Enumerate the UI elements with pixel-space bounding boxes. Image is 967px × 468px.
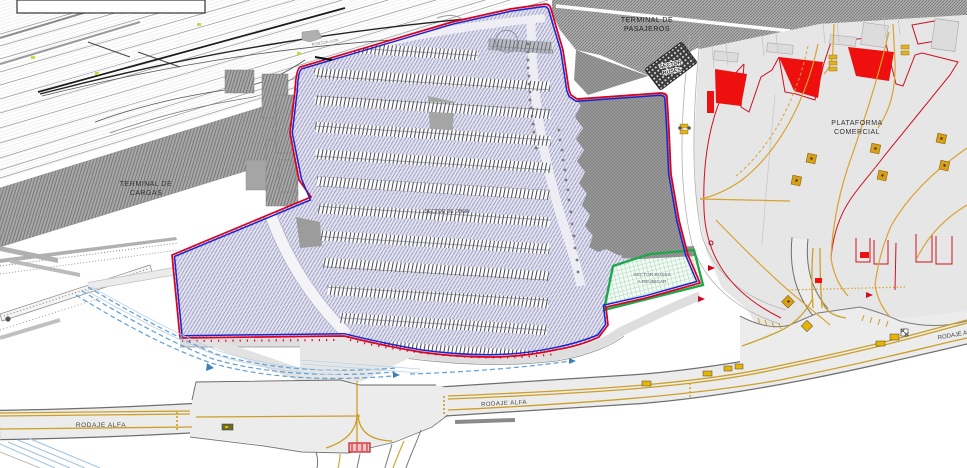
svg-text:CARGAS: CARGAS <box>130 190 163 197</box>
svg-text:TERMINAL DE: TERMINAL DE <box>621 17 673 24</box>
svg-text:COMERCIAL: COMERCIAL <box>834 129 880 136</box>
svg-text:A REUBICAR: A REUBICAR <box>637 279 667 285</box>
svg-text:SECTOR DE OBRA: SECTOR DE OBRA <box>425 209 470 215</box>
svg-text:PLATAFORMA: PLATAFORMA <box>831 120 882 127</box>
svg-text:SECTOR BUSES: SECTOR BUSES <box>633 272 671 278</box>
svg-text:TERMINAL DE: TERMINAL DE <box>120 181 172 188</box>
svg-text:PASAJEROS: PASAJEROS <box>624 26 670 33</box>
svg-text:RODAJE ALFA: RODAJE ALFA <box>76 422 126 429</box>
